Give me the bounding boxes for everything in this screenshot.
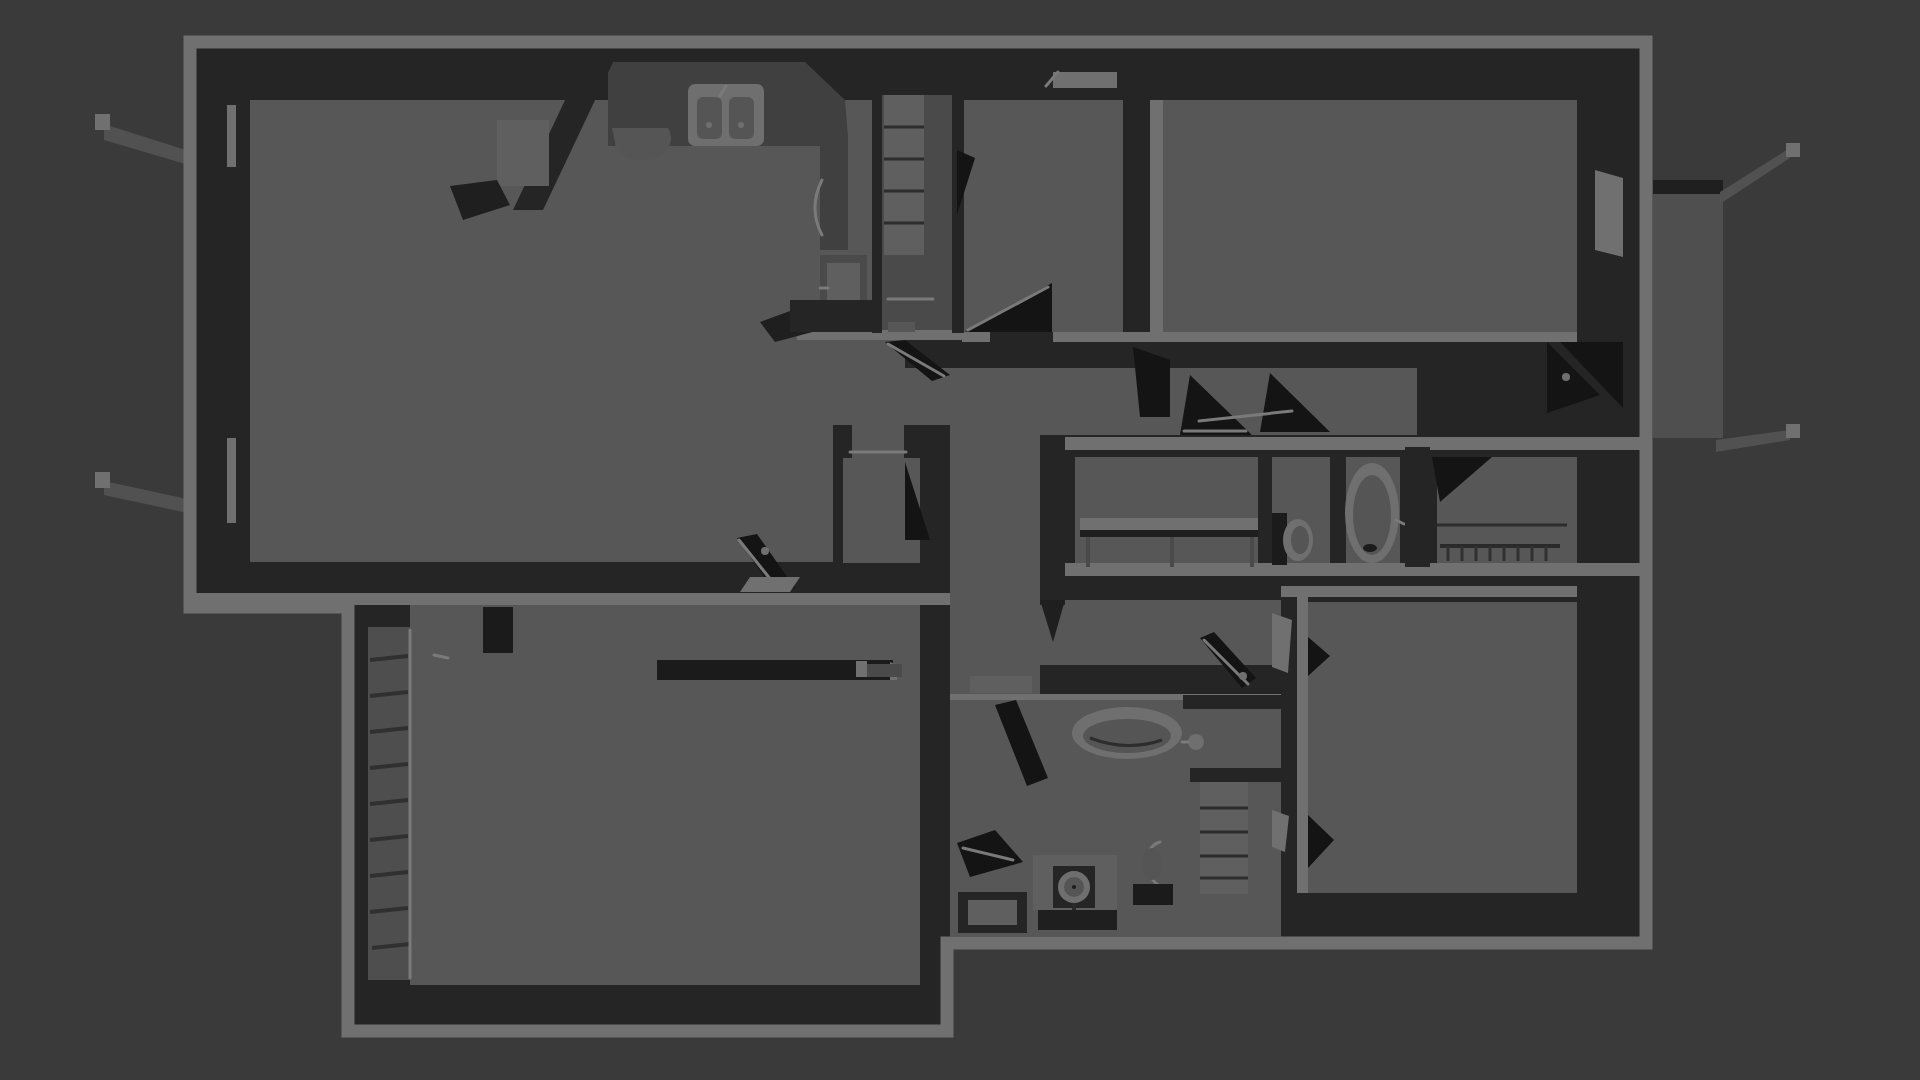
kitchen-south-wall [790,300,880,332]
stoop-cap [856,661,867,677]
master-toilet-bowl [1142,848,1162,880]
walltop-bedroom-divider [1150,100,1163,342]
walltop-master-west [1297,586,1308,893]
sink-drain-left [706,122,712,128]
vanity-leg [1170,537,1174,567]
entry-bath-wall [1040,435,1065,605]
walltop-bedroom-south-b [1053,332,1577,342]
floorplan-viewport[interactable] [0,0,1920,1080]
vanity-console-top [1080,518,1260,530]
living-west-window-2 [227,438,236,523]
water-heater [483,607,513,653]
sill-cap [95,114,110,130]
vanity-shadow [1038,910,1117,930]
tub-partition [1330,457,1346,563]
living-south-wall-b [800,562,833,593]
bath-closet-wall [1405,447,1430,567]
tub-drain [1363,544,1377,552]
walltop-bedroom-south-a [962,332,990,342]
door-knob [1562,373,1570,381]
corridor-floor [1040,600,1281,665]
porch-slab-shadow [1653,180,1723,194]
stoop-bar [866,664,902,677]
bath-subwall-1 [1183,695,1281,709]
walltop-south-living-garage [196,593,950,605]
walltop-master-north [1281,586,1577,597]
tub-faucet-wheel [1188,734,1204,750]
sill-cap [95,472,110,488]
walltop-bath-south [1065,563,1640,576]
living-south-wall [203,562,733,593]
corner-fireplace [497,120,549,186]
master-bedroom-floor [1308,602,1577,893]
hall-bathtub-basin [1353,475,1391,555]
pantry-floor-sliver [888,322,915,332]
porch-slab [1653,180,1723,438]
corridor-open-door-flat [970,676,1032,693]
toilet-partition [1258,457,1272,563]
bedroom2-north-window [1053,72,1117,88]
shower-stall-floor [968,900,1017,925]
master-toilet-base [1133,884,1173,905]
sink-drain-right [738,122,744,128]
door-threshold [740,577,800,592]
oven-top [827,263,860,305]
porch-post-bottom [1786,424,1800,438]
hall-toilet-seat [1291,526,1309,554]
entry-floor [950,413,1040,700]
porch-post-top [1786,143,1800,157]
pantry-shelves [884,95,924,255]
center-closet [833,425,950,593]
sink-basin-left [697,97,722,139]
floorplan-3d-render [0,0,1920,1080]
walltop-bath-north [1065,437,1640,450]
living-west-window-1 [227,105,236,167]
bedroom-3-floor [1163,100,1577,342]
door-knob [761,547,769,555]
vanity-console-front [1080,530,1260,537]
vanity-leg [1086,537,1090,567]
vanity-leg [1250,537,1254,567]
garden-tub-basin [1083,719,1171,753]
bath-subwall-2 [1190,768,1281,782]
sink-basin-right [729,97,754,139]
door-knob [1239,672,1247,680]
pantry-west-wall [872,55,882,333]
bedroom3-east-window [1595,170,1623,257]
sink-drain [1072,885,1076,889]
